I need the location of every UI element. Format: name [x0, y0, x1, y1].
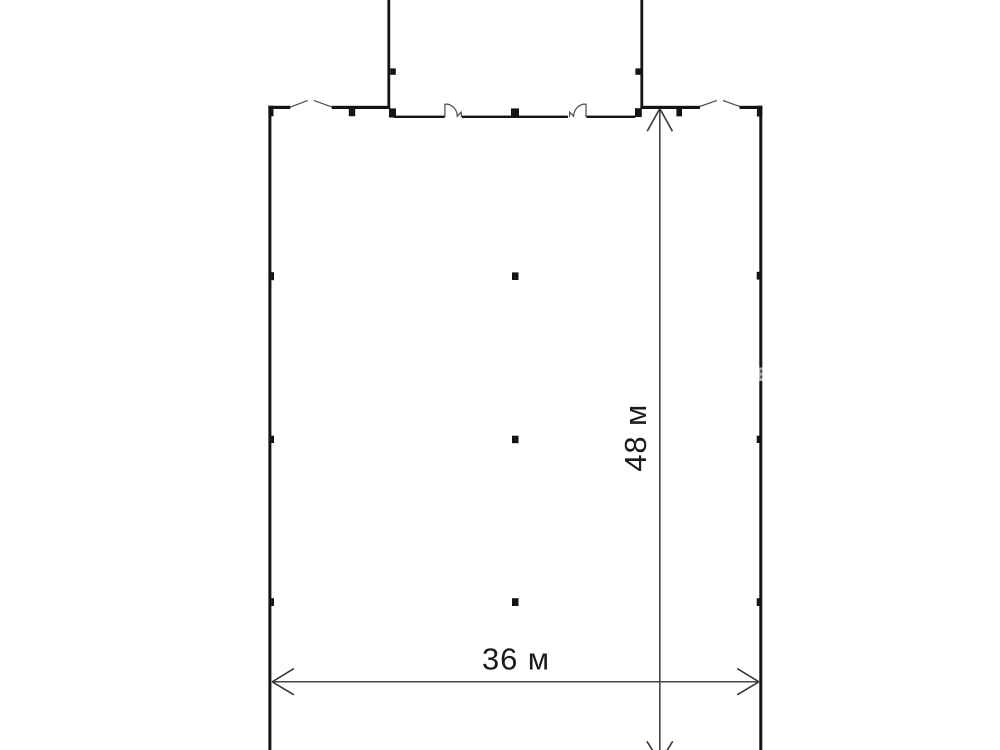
svg-text:48 м: 48 м [618, 404, 653, 472]
svg-text:36 м: 36 м [482, 642, 550, 677]
